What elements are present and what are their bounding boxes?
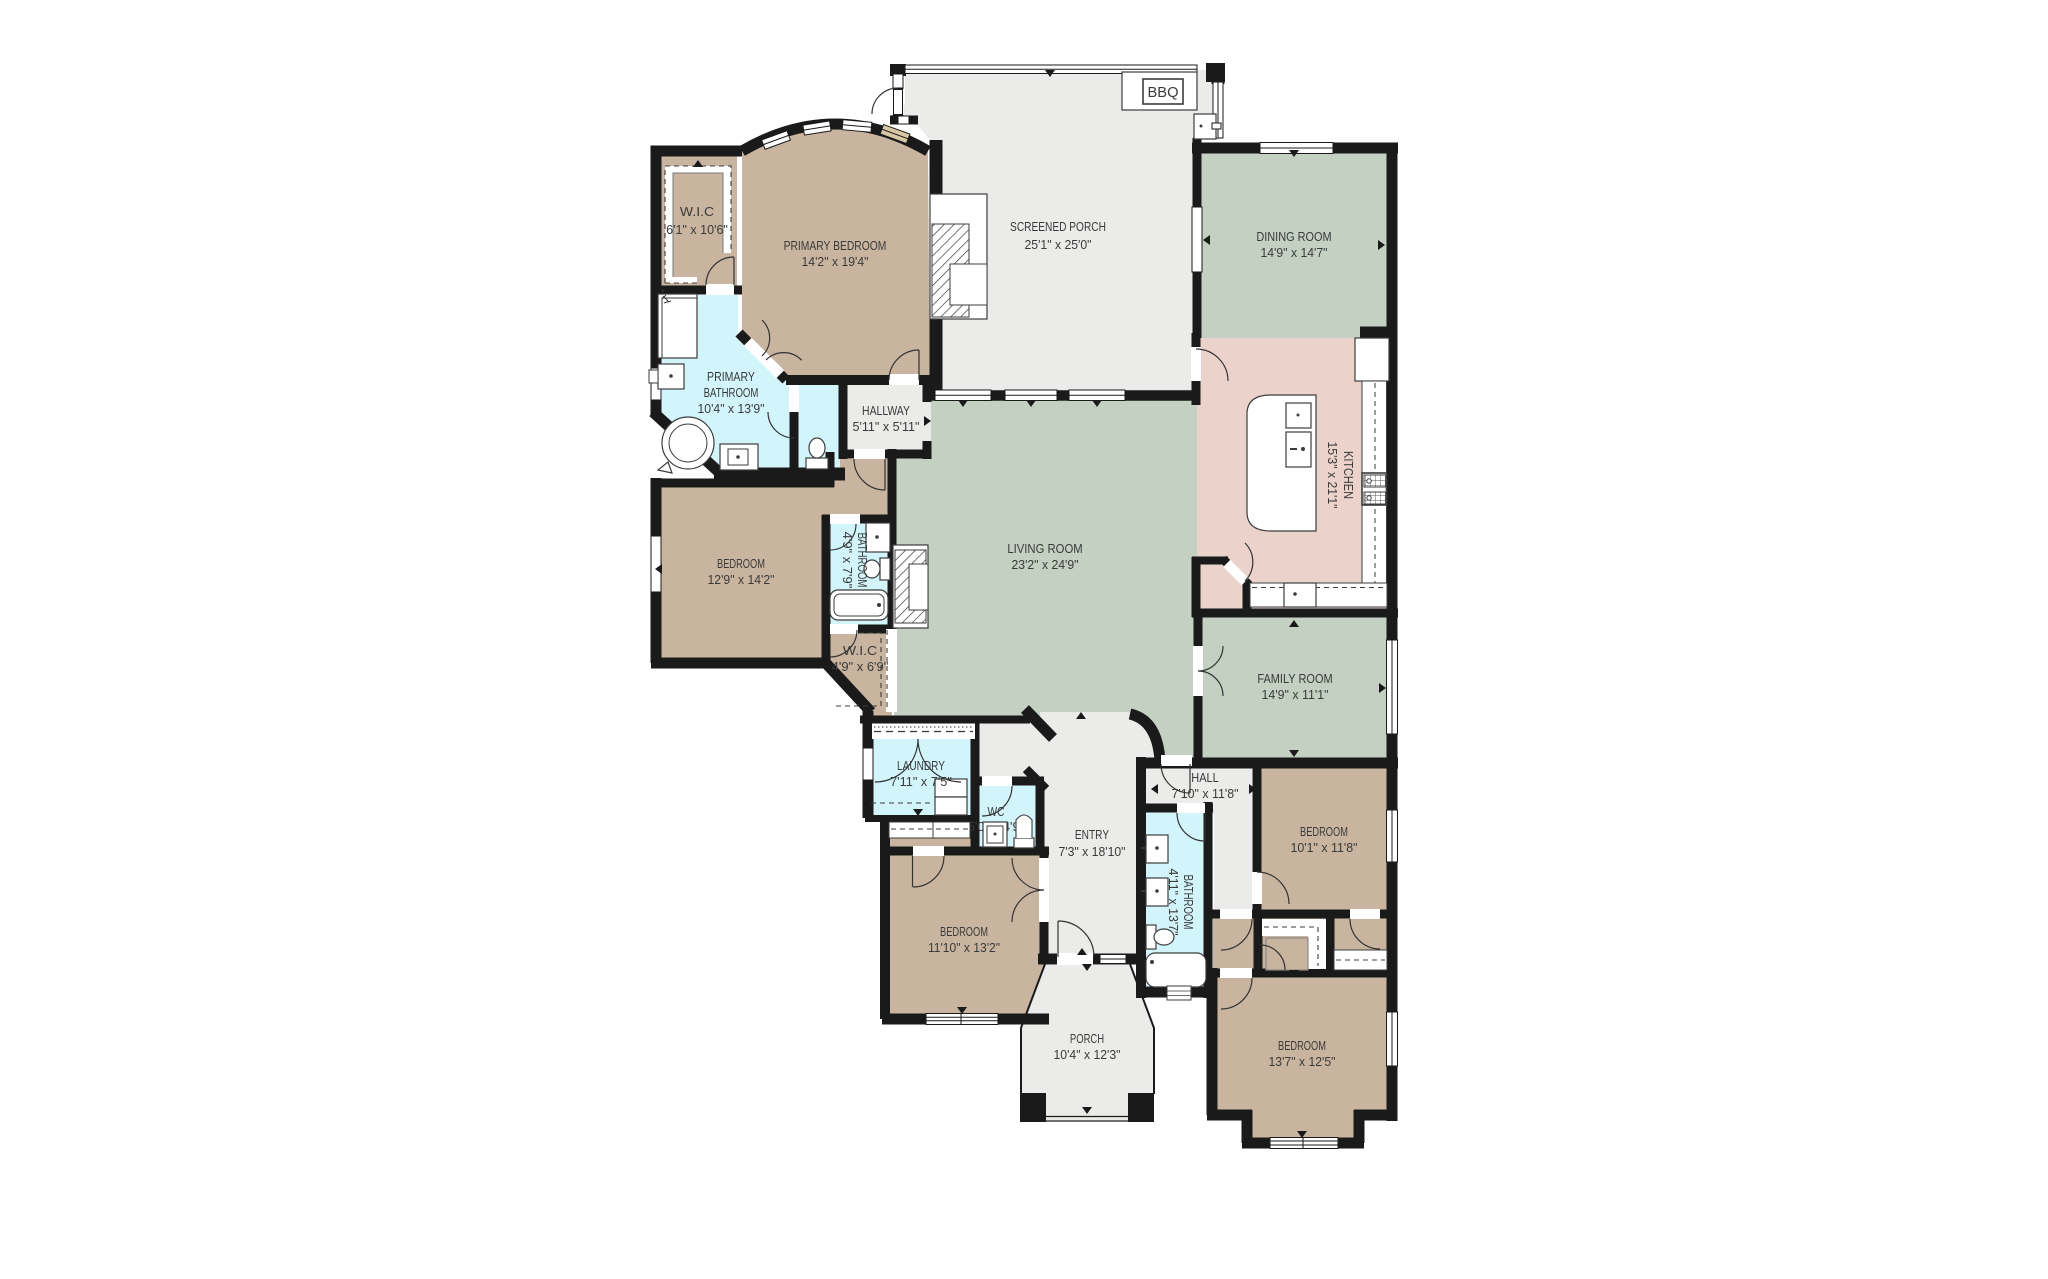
svg-text:SCREENED PORCH: SCREENED PORCH	[1010, 219, 1106, 234]
svg-text:LAUNDRY: LAUNDRY	[897, 758, 945, 773]
svg-text:W.I.C: W.I.C	[843, 643, 877, 658]
svg-text:10'4" x 13'9": 10'4" x 13'9"	[698, 401, 765, 416]
svg-text:10'1" x 11'8": 10'1" x 11'8"	[1291, 840, 1358, 855]
svg-text:BEDROOM: BEDROOM	[1278, 1038, 1326, 1053]
svg-text:KITCHEN: KITCHEN	[1341, 451, 1356, 499]
svg-text:W.I.C: W.I.C	[680, 204, 714, 219]
svg-text:5'11" x 5'11": 5'11" x 5'11"	[853, 419, 920, 434]
svg-text:LIVING ROOM: LIVING ROOM	[1007, 541, 1082, 556]
svg-text:PORCH: PORCH	[1070, 1031, 1104, 1046]
svg-text:7'11" x 7'5": 7'11" x 7'5"	[890, 774, 952, 789]
svg-text:6'1" x 10'6": 6'1" x 10'6"	[666, 222, 728, 237]
svg-text:ENTRY: ENTRY	[1075, 827, 1109, 842]
svg-text:BATHROOM: BATHROOM	[855, 533, 870, 588]
svg-text:14'9" x 11'1": 14'9" x 11'1"	[1262, 687, 1329, 702]
svg-text:13'7" x 12'5": 13'7" x 12'5"	[1269, 1054, 1336, 1069]
svg-text:PRIMARY BEDROOM: PRIMARY BEDROOM	[784, 238, 887, 253]
svg-text:DINING ROOM: DINING ROOM	[1256, 229, 1331, 244]
svg-text:BEDROOM: BEDROOM	[717, 556, 765, 571]
svg-text:4'11" x 13'7": 4'11" x 13'7"	[1166, 869, 1181, 936]
svg-text:FAMILY ROOM: FAMILY ROOM	[1257, 671, 1332, 686]
svg-text:14'9" x 14'7": 14'9" x 14'7"	[1261, 245, 1328, 260]
svg-text:PRIMARY: PRIMARY	[707, 369, 755, 384]
svg-text:10'4" x 12'3": 10'4" x 12'3"	[1054, 1047, 1121, 1062]
svg-text:7'10" x 11'8": 7'10" x 11'8"	[1172, 786, 1239, 801]
svg-text:12'9" x 14'2": 12'9" x 14'2"	[708, 572, 775, 587]
svg-text:23'2" x 24'9": 23'2" x 24'9"	[1012, 557, 1079, 572]
svg-text:BATHROOM: BATHROOM	[1181, 875, 1196, 930]
svg-text:HALL: HALL	[1191, 770, 1218, 785]
svg-text:BEDROOM: BEDROOM	[1300, 824, 1348, 839]
svg-text:BBQ: BBQ	[1148, 84, 1179, 101]
svg-text:7'3" x 18'10": 7'3" x 18'10"	[1059, 844, 1126, 859]
svg-text:WC: WC	[988, 804, 1005, 819]
svg-text:25'1" x 25'0": 25'1" x 25'0"	[1025, 237, 1092, 252]
svg-text:4'9" x 7'9": 4'9" x 7'9"	[840, 532, 855, 589]
svg-text:BATHROOM: BATHROOM	[704, 385, 759, 400]
svg-text:14'2" x 19'4": 14'2" x 19'4"	[802, 254, 869, 269]
svg-text:4'9" x 6'9": 4'9" x 6'9"	[832, 659, 889, 674]
svg-text:BEDROOM: BEDROOM	[940, 924, 988, 939]
svg-text:15'3" x 21'1": 15'3" x 21'1"	[1325, 442, 1340, 509]
svg-text:HALLWAY: HALLWAY	[862, 403, 910, 418]
svg-text:11'10" x 13'2": 11'10" x 13'2"	[928, 940, 1000, 955]
